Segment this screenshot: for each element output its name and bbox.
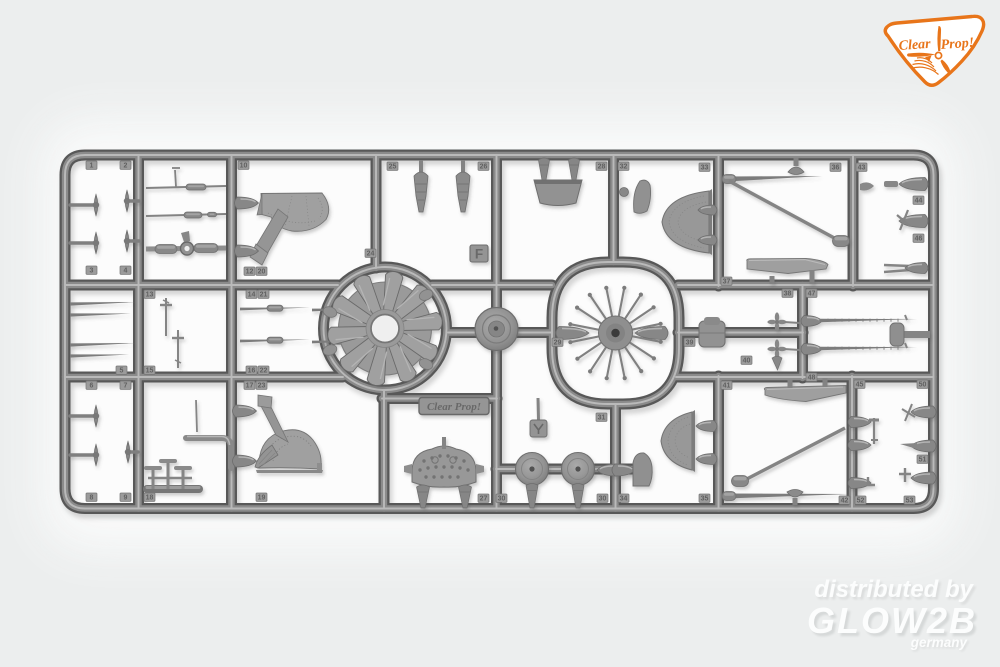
svg-text:20: 20 [258,269,266,276]
svg-text:7: 7 [124,383,128,390]
svg-text:25: 25 [389,164,397,171]
svg-text:distributed by: distributed by [814,576,974,603]
svg-text:24: 24 [367,251,375,258]
svg-text:9: 9 [124,495,128,502]
svg-text:6: 6 [90,383,94,390]
svg-text:26: 26 [480,164,488,171]
svg-text:3: 3 [90,268,94,275]
svg-text:42: 42 [841,498,849,505]
svg-text:41: 41 [723,383,731,390]
svg-text:4: 4 [124,268,128,275]
svg-text:23: 23 [258,383,266,390]
svg-text:32: 32 [620,164,628,171]
svg-text:17: 17 [246,383,254,390]
svg-text:28: 28 [598,164,606,171]
svg-text:21: 21 [260,292,268,299]
svg-text:F: F [475,247,483,262]
svg-text:18: 18 [146,495,154,502]
svg-text:Clear Prop!: Clear Prop! [427,401,481,413]
svg-text:15: 15 [146,368,154,375]
svg-text:35: 35 [701,496,709,503]
svg-text:33: 33 [701,165,709,172]
svg-text:45: 45 [856,382,864,389]
svg-text:43: 43 [858,165,866,172]
svg-text:30: 30 [498,496,506,503]
svg-text:2: 2 [124,163,128,170]
svg-text:22: 22 [260,368,268,375]
svg-text:29: 29 [554,340,562,347]
svg-text:52: 52 [857,498,865,505]
svg-text:51: 51 [919,457,927,464]
svg-text:19: 19 [258,495,266,502]
svg-text:27: 27 [480,496,488,503]
svg-text:16: 16 [248,368,256,375]
svg-text:53: 53 [906,498,914,505]
svg-text:14: 14 [248,292,256,299]
svg-text:38: 38 [784,291,792,298]
svg-text:12: 12 [246,269,254,276]
svg-text:37: 37 [723,279,731,286]
svg-text:34: 34 [620,496,628,503]
svg-text:30: 30 [599,496,607,503]
svg-text:46: 46 [915,236,923,243]
svg-text:39: 39 [686,340,694,347]
svg-text:40: 40 [743,358,751,365]
svg-text:10: 10 [240,163,248,170]
svg-text:5: 5 [120,368,124,375]
svg-text:50: 50 [919,382,927,389]
svg-text:8: 8 [90,495,94,502]
svg-text:31: 31 [598,415,606,422]
svg-text:44: 44 [915,198,923,205]
svg-text:36: 36 [832,165,840,172]
svg-text:47: 47 [808,291,816,298]
svg-text:48: 48 [808,375,816,382]
svg-text:13: 13 [146,292,154,299]
svg-text:1: 1 [90,163,94,170]
svg-text:Clear: Clear [898,37,931,54]
svg-text:germany: germany [910,635,969,650]
svg-text:Prop!: Prop! [940,36,974,53]
